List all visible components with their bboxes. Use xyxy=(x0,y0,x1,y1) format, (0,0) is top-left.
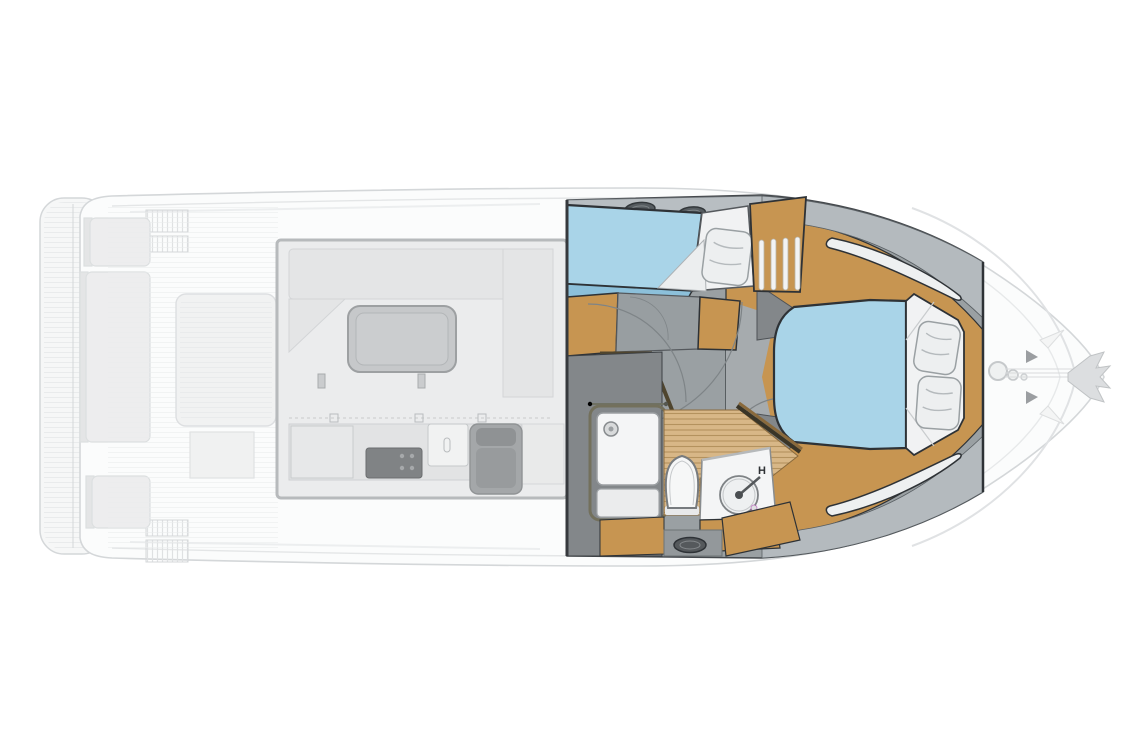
table-leg xyxy=(418,374,425,388)
windlass-gypsy xyxy=(1008,370,1018,380)
guest-cabinet-gray xyxy=(616,293,700,352)
helm-seat xyxy=(470,424,522,494)
floor-plan-canvas: H xyxy=(0,0,1127,751)
owner-bed-mattress xyxy=(774,300,906,449)
boat-floor-plan: H xyxy=(0,0,1127,751)
salon xyxy=(277,240,567,498)
pillow xyxy=(701,227,753,286)
shower-drain-center xyxy=(609,427,614,432)
salon-sofa-side xyxy=(503,249,553,397)
toilet xyxy=(665,456,699,515)
salon-table-top xyxy=(356,313,448,365)
head-cabinet-wood xyxy=(600,517,664,556)
rail-knob xyxy=(664,402,668,406)
galley-stove xyxy=(366,448,422,478)
faucet-base xyxy=(735,491,743,499)
lower-deck-section: H xyxy=(567,195,983,558)
table-leg xyxy=(318,374,325,388)
pillow xyxy=(915,376,962,431)
hot-water-label: H xyxy=(758,465,766,477)
companionway-door-ghost xyxy=(522,424,564,484)
floor-hatch xyxy=(674,538,706,553)
rail-knob xyxy=(588,402,592,406)
pillow xyxy=(912,320,961,376)
shower-seat xyxy=(597,489,659,517)
galley-fridge xyxy=(291,426,353,478)
cockpit-step-box xyxy=(190,432,254,478)
owner-bed-bedding xyxy=(906,294,964,455)
guest-nightstand-wood xyxy=(698,297,740,350)
galley-sink-locker xyxy=(428,424,468,466)
floor-hatch-inset xyxy=(664,530,722,556)
guest-cabinet-wood xyxy=(567,293,618,356)
owner-island-bed xyxy=(774,294,964,455)
windlass xyxy=(989,362,1007,380)
